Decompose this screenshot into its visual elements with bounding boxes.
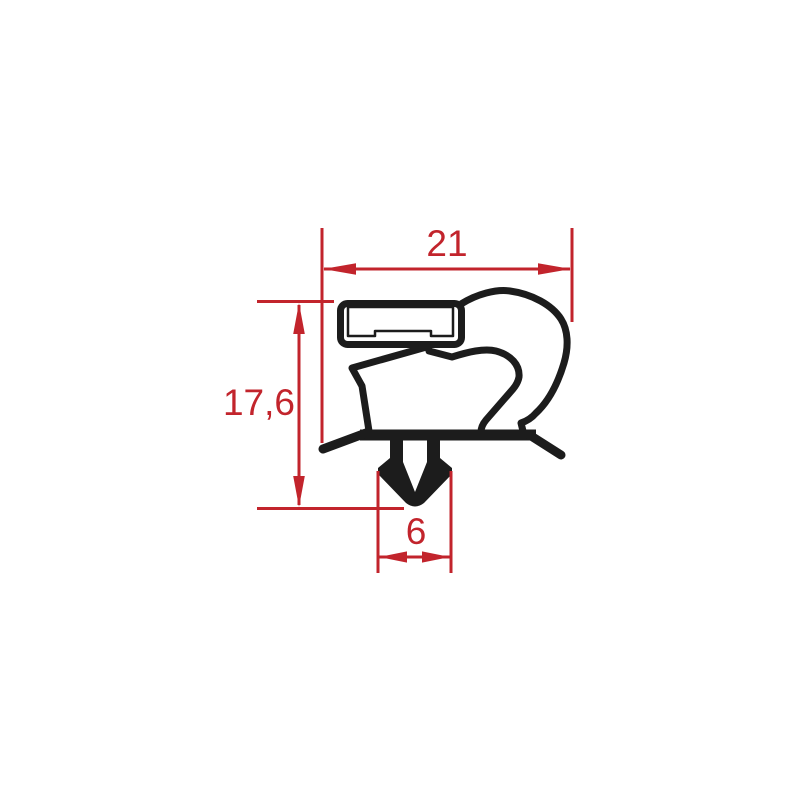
technical-drawing-page: 21 17,6 6 [0, 0, 800, 800]
arrow-up-icon [293, 303, 305, 334]
bellows-outline [352, 346, 430, 431]
gasket-profile [323, 291, 567, 507]
height-dimension-label: 17,6 [223, 382, 295, 423]
arrow-right-icon [538, 263, 571, 275]
hatched-core [348, 307, 453, 336]
arrow-left-icon [323, 263, 356, 275]
bulb-inner-curve [428, 345, 519, 432]
arrow-left-icon [379, 551, 407, 562]
right-lip [528, 434, 561, 455]
dart-width-dimension-label: 6 [406, 511, 427, 552]
gasket-profile-drawing: 21 17,6 6 [0, 0, 800, 800]
push-in-dart [378, 440, 452, 507]
arrow-right-icon [422, 551, 450, 562]
dimensions: 21 17,6 6 [223, 223, 572, 573]
arrow-down-icon [293, 476, 305, 507]
magnet-insert-block [341, 304, 462, 345]
width-dimension-label: 21 [426, 223, 467, 264]
left-lip [323, 433, 366, 449]
